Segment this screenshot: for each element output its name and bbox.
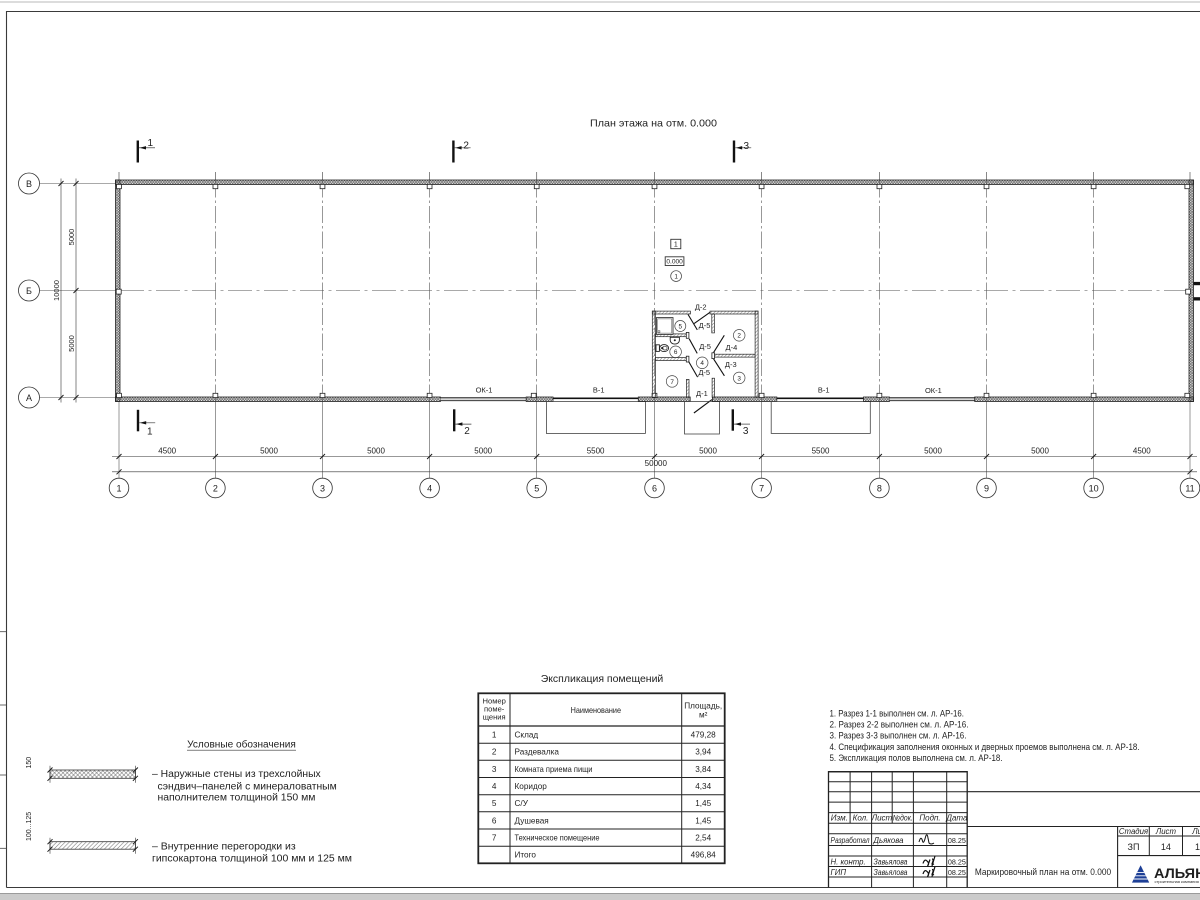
svg-text:1,45: 1,45 [695, 816, 711, 825]
svg-text:– Наружные стены из трехслойны: – Наружные стены из трехслойных [152, 769, 321, 780]
svg-text:7: 7 [759, 484, 764, 494]
svg-text:Д-1: Д-1 [696, 389, 708, 398]
svg-text:Лис: Лис [1191, 827, 1200, 836]
svg-text:3,84: 3,84 [695, 765, 711, 774]
svg-text:3: 3 [744, 141, 750, 152]
svg-text:Д-4: Д-4 [726, 343, 738, 352]
svg-text:С/У: С/У [515, 799, 529, 808]
svg-text:№док.: №док. [893, 814, 913, 823]
svg-text:Д-5: Д-5 [698, 368, 710, 377]
svg-text:2. Разрез 2-2 выполнен см. л.: 2. Разрез 2-2 выполнен см. л. АР-16. [830, 720, 969, 730]
svg-text:1: 1 [674, 241, 678, 248]
svg-text:Д-5: Д-5 [699, 342, 711, 351]
svg-text:Итого: Итого [515, 851, 537, 860]
svg-text:Д-2: Д-2 [695, 303, 707, 312]
svg-text:5500: 5500 [587, 447, 605, 456]
svg-text:5: 5 [534, 484, 539, 494]
svg-text:2: 2 [492, 748, 497, 757]
svg-text:ОК-1: ОК-1 [925, 386, 942, 395]
svg-text:Дьякова: Дьякова [873, 836, 905, 845]
svg-text:щения: щения [483, 713, 506, 722]
svg-text:5000: 5000 [67, 335, 76, 352]
svg-text:2: 2 [463, 140, 469, 151]
svg-text:4: 4 [427, 484, 432, 494]
svg-text:8: 8 [877, 484, 882, 494]
svg-text:Коридор: Коридор [515, 782, 548, 791]
svg-text:Комната приема пищи: Комната приема пищи [515, 765, 593, 774]
svg-text:3: 3 [737, 375, 741, 382]
svg-text:5000: 5000 [367, 447, 385, 456]
svg-text:3. Разрез 3-3 выполнен см. л.: 3. Разрез 3-3 выполнен см. л. АР-16. [830, 731, 967, 741]
svg-text:В: В [26, 179, 32, 189]
svg-text:496,84: 496,84 [691, 851, 716, 860]
svg-text:сэндвич–панелей с минераловатн: сэндвич–панелей с минераловатным [158, 781, 337, 792]
svg-text:Кол.: Кол. [853, 814, 869, 823]
svg-text:1: 1 [147, 427, 153, 438]
svg-text:ЗП: ЗП [1128, 842, 1140, 852]
svg-text:В-1: В-1 [818, 385, 830, 394]
svg-text:Дата: Дата [945, 814, 968, 823]
svg-text:11: 11 [1185, 484, 1194, 494]
svg-text:3: 3 [492, 765, 497, 774]
svg-text:Техническое помещение: Техническое помещение [515, 834, 600, 843]
svg-text:5. Экспликация полов выполнена: 5. Экспликация полов выполнена см. л. АР… [830, 753, 1003, 763]
svg-text:Экспликация помещений: Экспликация помещений [541, 673, 664, 685]
svg-text:7: 7 [492, 834, 497, 843]
svg-text:ОК-1: ОК-1 [476, 385, 493, 394]
svg-text:5: 5 [492, 799, 497, 808]
svg-text:5000: 5000 [699, 447, 717, 456]
svg-text:строительная компания: строительная компания [1155, 879, 1199, 884]
svg-text:Душевая: Душевая [515, 816, 549, 825]
svg-text:Д-3: Д-3 [725, 360, 737, 369]
svg-text:4500: 4500 [1133, 447, 1151, 456]
svg-text:5: 5 [679, 323, 683, 330]
svg-text:3,94: 3,94 [695, 748, 711, 757]
svg-text:4,34: 4,34 [695, 782, 711, 791]
svg-text:6: 6 [492, 816, 497, 825]
svg-text:4: 4 [700, 360, 704, 367]
svg-text:1,45: 1,45 [695, 799, 711, 808]
svg-text:14: 14 [1161, 842, 1171, 852]
svg-text:Склад: Склад [515, 731, 539, 740]
svg-text:Д-5: Д-5 [699, 321, 711, 330]
svg-text:В-1: В-1 [593, 385, 605, 394]
svg-text:4. Спецификация заполнения око: 4. Спецификация заполнения оконных и две… [830, 742, 1140, 752]
svg-text:5000: 5000 [1031, 447, 1049, 456]
svg-text:5000: 5000 [260, 447, 278, 456]
svg-text:Маркировочный план на отм. 0.0: Маркировочный план на отм. 0.000 [975, 867, 1111, 878]
svg-text:наполнителем толщиной 150 мм: наполнителем толщиной 150 мм [158, 793, 316, 804]
svg-text:10000: 10000 [52, 280, 61, 301]
svg-text:– Внутренние перегородки из: – Внутренние перегородки из [152, 842, 296, 853]
svg-text:2,54: 2,54 [695, 834, 711, 843]
svg-text:0.000: 0.000 [666, 258, 683, 265]
svg-text:1: 1 [148, 138, 154, 149]
svg-text:Завьялова: Завьялова [874, 858, 909, 867]
svg-text:ГИП: ГИП [831, 868, 847, 877]
svg-text:3: 3 [743, 426, 749, 437]
svg-text:08.25: 08.25 [948, 858, 966, 867]
svg-text:Н. контр.: Н. контр. [831, 858, 866, 867]
svg-text:5000: 5000 [67, 229, 76, 246]
svg-text:Изм.: Изм. [831, 814, 848, 823]
svg-text:Стадия: Стадия [1119, 827, 1149, 836]
svg-text:1: 1 [116, 484, 121, 494]
svg-text:9: 9 [984, 484, 989, 494]
svg-text:Разработал: Разработал [831, 836, 871, 845]
svg-text:5500: 5500 [812, 447, 830, 456]
svg-text:Б: Б [26, 286, 32, 296]
svg-text:гипсокартона толщиной 100 мм и: гипсокартона толщиной 100 мм и 125 мм [152, 854, 352, 865]
svg-text:2: 2 [464, 426, 470, 437]
svg-text:5000: 5000 [924, 447, 942, 456]
svg-text:08.25: 08.25 [948, 868, 966, 877]
svg-text:4: 4 [492, 782, 497, 791]
svg-text:479,28: 479,28 [691, 731, 716, 740]
svg-text:1: 1 [492, 731, 497, 740]
svg-text:10: 10 [1089, 484, 1099, 494]
svg-text:А: А [26, 393, 32, 403]
svg-text:Условные обозначения: Условные обозначения [187, 739, 296, 751]
svg-text:Раздевалка: Раздевалка [515, 748, 560, 757]
svg-text:2: 2 [213, 484, 218, 494]
svg-text:Наименование: Наименование [571, 706, 622, 715]
svg-text:100...125: 100...125 [26, 812, 33, 841]
svg-text:50000: 50000 [645, 459, 668, 468]
svg-text:7: 7 [670, 379, 674, 386]
svg-text:Подп.: Подп. [919, 814, 940, 823]
svg-text:150: 150 [26, 757, 33, 769]
svg-text:3: 3 [320, 484, 325, 494]
svg-text:6: 6 [674, 349, 678, 356]
svg-text:Лист: Лист [1155, 827, 1177, 836]
svg-text:1: 1 [674, 274, 678, 281]
svg-text:Завьялова: Завьялова [874, 868, 909, 877]
svg-text:Площадь,: Площадь, [684, 702, 722, 711]
svg-text:м²: м² [699, 711, 708, 720]
svg-text:Лист: Лист [871, 814, 893, 823]
svg-text:1. Разрез 1-1 выполнен см. л.: 1. Разрез 1-1 выполнен см. л. АР-16. [830, 709, 965, 719]
svg-text:План этажа на отм. 0.000: План этажа на отм. 0.000 [590, 118, 717, 130]
svg-text:6: 6 [652, 484, 657, 494]
svg-text:4500: 4500 [158, 447, 176, 456]
svg-text:08.25: 08.25 [948, 836, 966, 845]
svg-text:2: 2 [737, 333, 741, 340]
svg-text:1: 1 [1195, 842, 1200, 852]
svg-text:5000: 5000 [474, 447, 492, 456]
